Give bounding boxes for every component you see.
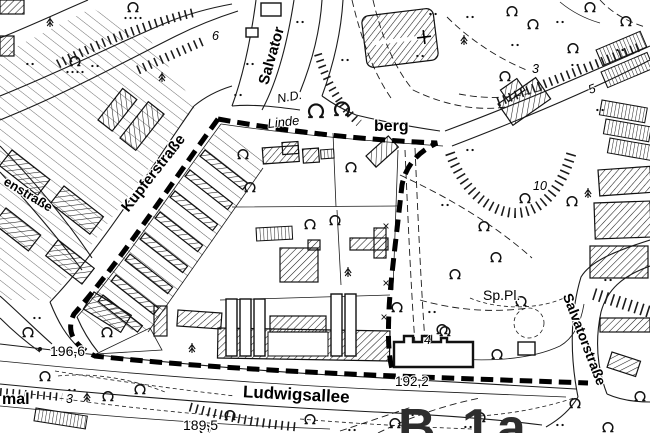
church-building <box>361 8 439 68</box>
street-label-salvator: Salvator <box>255 25 288 87</box>
elevation-192: 192,2 <box>395 374 429 389</box>
parcel-number-6: 6 <box>212 29 219 43</box>
label-linde: Linde <box>267 113 300 131</box>
street-label-berg: berg <box>374 118 409 135</box>
label-naturdenkmal: N.D. <box>276 88 303 106</box>
elevation-196: 196,6 <box>50 343 85 359</box>
parcel-number-5: 5 <box>586 81 597 97</box>
elevation-189: 189,5 <box>183 417 218 433</box>
label-plan-designation: B 1a <box>398 399 532 433</box>
label-spielplatz: Sp.Pl. <box>483 287 520 303</box>
spot-height-icon <box>38 347 42 351</box>
street-label-ludwigsallee: Ludwigsallee <box>242 382 350 407</box>
map-canvas: Kupferstraße Salvator berg enstraße Ludw… <box>0 0 650 433</box>
parcel-number-3-top: 3 <box>532 62 539 76</box>
parcel-number-3-bottom: 3 <box>66 392 73 406</box>
school-building <box>394 336 473 367</box>
parcel-number-10: 10 <box>533 179 547 193</box>
cadastral-map: Kupferstraße Salvator berg enstraße Ludw… <box>0 0 650 433</box>
parcel-number-4: 4 <box>424 333 431 347</box>
street-label-denkmal-fragment: mal <box>2 391 30 408</box>
street-label-salvatorstrasse: Salvatorstraße <box>560 291 610 388</box>
